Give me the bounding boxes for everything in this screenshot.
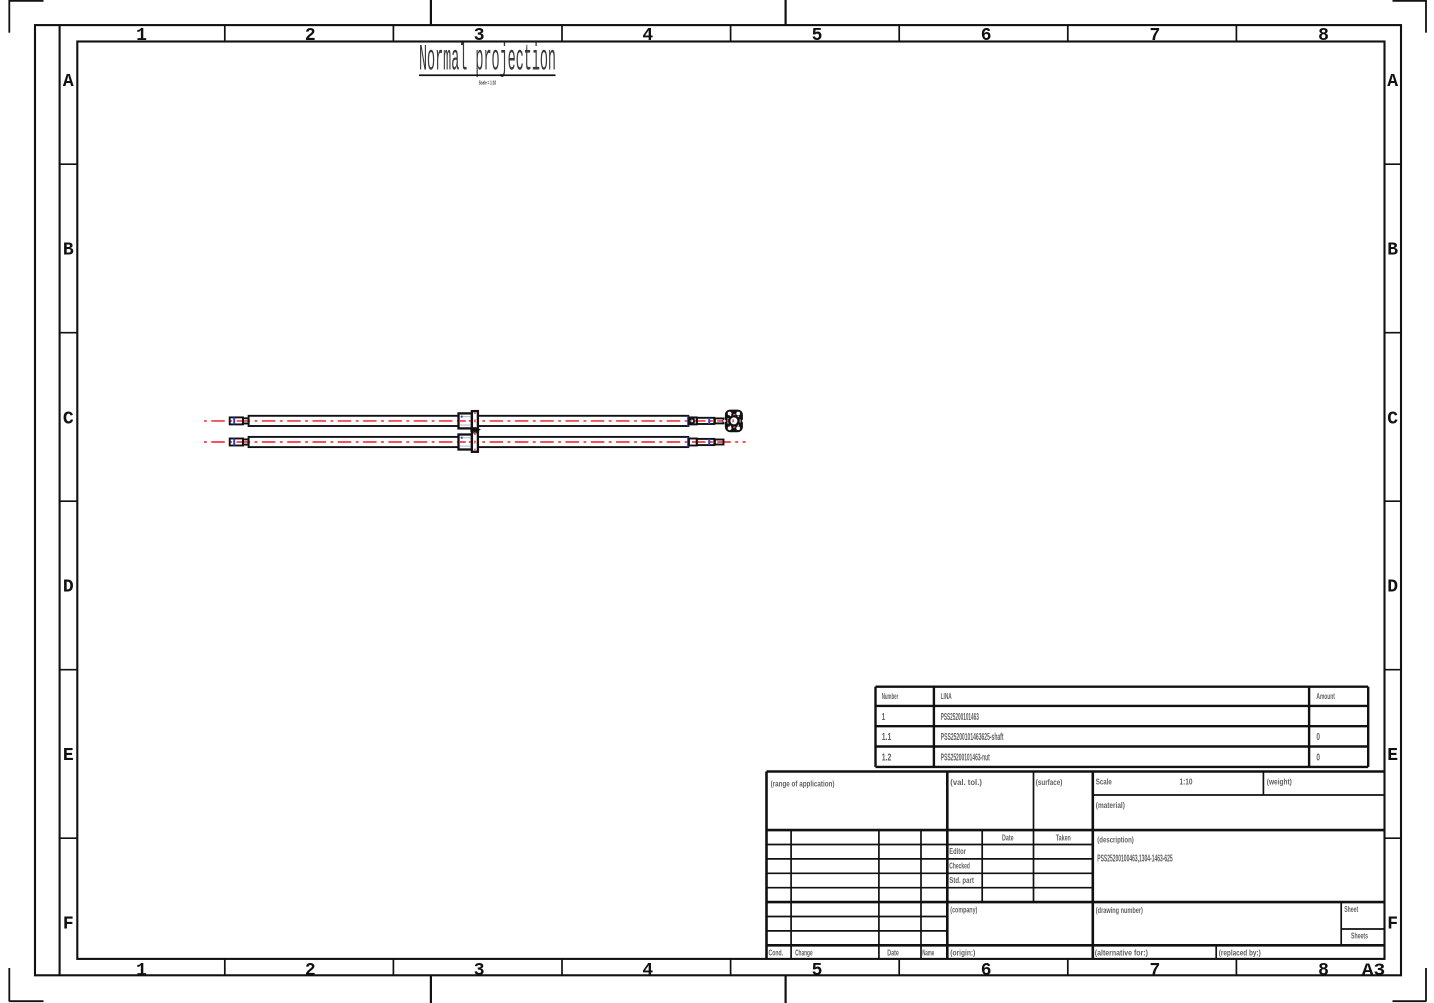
svg-text:2: 2 <box>305 26 316 46</box>
svg-text:(val. tol.): (val. tol.) <box>950 778 982 787</box>
svg-text:6: 6 <box>981 26 992 46</box>
svg-text:8: 8 <box>1318 26 1329 46</box>
svg-text:(range of application): (range of application) <box>771 779 835 789</box>
svg-text:PSS25200101463625-shaft: PSS25200101463625-shaft <box>941 731 1004 742</box>
svg-text:D: D <box>1387 578 1398 598</box>
svg-text:Sheet: Sheet <box>1344 906 1359 914</box>
svg-text:C: C <box>63 409 74 429</box>
svg-text:8: 8 <box>1318 961 1329 981</box>
svg-text:E: E <box>1387 746 1398 766</box>
svg-text:(replaced by:): (replaced by:) <box>1219 948 1262 958</box>
svg-text:(origin:): (origin:) <box>950 948 975 958</box>
svg-text:(alternative for:): (alternative for:) <box>1095 948 1149 958</box>
svg-text:B: B <box>1387 241 1398 261</box>
svg-text:4: 4 <box>642 26 653 46</box>
svg-text:PSS25200100463,1304-1463-625: PSS25200100463,1304-1463-625 <box>1097 852 1173 864</box>
svg-text:Checked: Checked <box>949 862 970 871</box>
svg-text:C: C <box>1387 409 1398 429</box>
svg-text:7: 7 <box>1149 26 1160 46</box>
svg-text:Taken: Taken <box>1056 834 1071 842</box>
svg-text:5: 5 <box>812 26 823 46</box>
svg-text:Sheets: Sheets <box>1351 932 1368 940</box>
svg-text:E: E <box>63 746 74 766</box>
svg-text:A3: A3 <box>1362 960 1385 981</box>
svg-text:Amount: Amount <box>1316 693 1335 702</box>
svg-text:6: 6 <box>981 961 992 981</box>
svg-text:5: 5 <box>812 961 823 981</box>
svg-text:1: 1 <box>882 710 885 722</box>
svg-text:Name: Name <box>922 949 934 958</box>
svg-text:A: A <box>1387 72 1398 92</box>
svg-text:0: 0 <box>1316 751 1320 763</box>
svg-text:Date: Date <box>887 950 899 958</box>
svg-text:F: F <box>1387 915 1398 935</box>
svg-text:Scale = 1:10: Scale = 1:10 <box>479 79 497 85</box>
svg-text:1.2: 1.2 <box>882 751 892 763</box>
svg-text:3: 3 <box>474 961 485 981</box>
svg-text:1:10: 1:10 <box>1179 777 1192 787</box>
svg-text:(weight): (weight) <box>1267 777 1292 787</box>
svg-text:1: 1 <box>136 26 147 46</box>
svg-text:0: 0 <box>1316 731 1320 743</box>
svg-text:(surface): (surface) <box>1036 777 1063 787</box>
svg-text:7: 7 <box>1149 961 1160 981</box>
svg-text:Change: Change <box>795 949 813 958</box>
svg-text:(company): (company) <box>950 907 977 915</box>
svg-text:F: F <box>63 915 74 935</box>
svg-text:4: 4 <box>642 961 653 981</box>
svg-text:Number: Number <box>882 693 899 702</box>
svg-text:2: 2 <box>305 961 316 981</box>
svg-text:Scale: Scale <box>1096 777 1112 787</box>
svg-text:Cond.: Cond. <box>769 949 784 957</box>
svg-text:B: B <box>63 241 74 261</box>
svg-text:1.1: 1.1 <box>882 731 892 743</box>
svg-text:PSS25200101463-nut: PSS25200101463-nut <box>941 752 990 764</box>
svg-text:Date: Date <box>1002 834 1014 842</box>
svg-text:1: 1 <box>136 961 147 981</box>
svg-text:PSS25200101463: PSS25200101463 <box>941 711 979 723</box>
svg-text:D: D <box>63 578 74 598</box>
svg-text:Editor: Editor <box>949 847 966 856</box>
svg-text:(drawing number): (drawing number) <box>1096 906 1144 915</box>
svg-text:(description): (description) <box>1097 834 1134 844</box>
svg-text:LINA: LINA <box>941 693 952 702</box>
svg-text:Std. part: Std. part <box>949 875 974 885</box>
svg-text:(material): (material) <box>1096 800 1125 810</box>
svg-text:A: A <box>63 72 74 92</box>
